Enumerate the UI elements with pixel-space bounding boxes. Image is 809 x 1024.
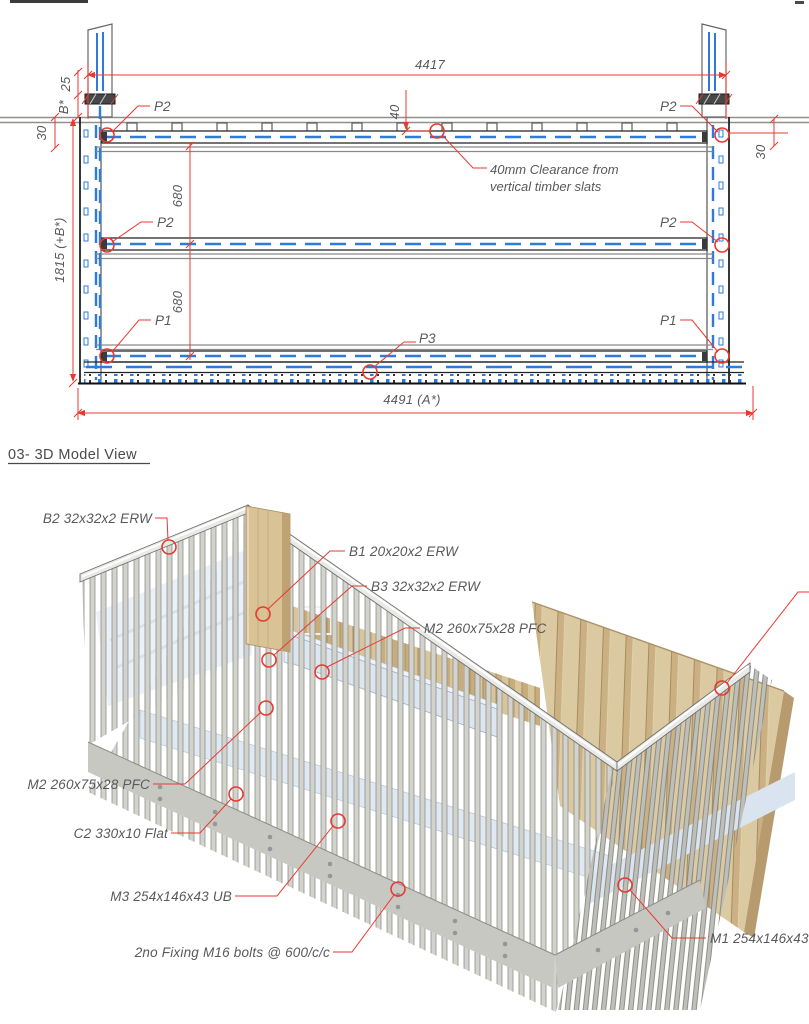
dim-bottom-width: 4491 (A*) xyxy=(383,392,441,407)
cropped-title-underline xyxy=(10,0,88,3)
right-post xyxy=(696,24,732,117)
model-view-title: 03- 3D Model View xyxy=(8,447,137,463)
dimension-bottom-width: 4491 (A*) xyxy=(74,386,757,420)
dimension-30-left: 30 xyxy=(34,113,59,152)
rail-bottom xyxy=(96,345,713,362)
drawing-sheet: 4417 40 40mm Clearance from vertical tim… xyxy=(0,0,809,1024)
label-p2-top-right: P2 xyxy=(660,99,677,114)
dim-rail-gap-lower: 680 xyxy=(170,290,185,313)
clearance-note-line2: vertical timber slats xyxy=(490,179,602,194)
label-p3: P3 xyxy=(419,331,436,346)
timber-post xyxy=(246,506,290,652)
label-m2-left: M2 260x75x28 PFC xyxy=(27,777,150,792)
clearance-note-line1: 40mm Clearance from xyxy=(490,162,619,177)
section-title: 03- 3D Model View xyxy=(8,447,150,464)
floor-channel xyxy=(78,362,746,384)
dimension-25-bstar: 25 B* xyxy=(56,68,82,121)
label-c2: C2 330x10 Flat xyxy=(74,826,169,841)
elevation-drawing: 4417 40 40mm Clearance from vertical tim… xyxy=(0,0,809,446)
label-m2-right: M2 260x75x28 PFC xyxy=(424,621,547,636)
left-wall xyxy=(80,117,101,383)
dim-b-star: B* xyxy=(56,99,71,114)
cropped-leader-right xyxy=(727,592,809,683)
label-p2-mid-right: P2 xyxy=(660,215,677,230)
label-b1: B1 20x20x2 ERW xyxy=(349,544,459,559)
dim-top-offset: 25 xyxy=(58,76,73,93)
dim-left-gap: 30 xyxy=(34,125,49,141)
label-b2: B2 32x32x2 ERW xyxy=(43,511,153,526)
rail-top xyxy=(96,131,713,152)
label-b3: B3 32x32x2 ERW xyxy=(371,579,481,594)
label-m3: M3 254x146x43 UB xyxy=(110,889,232,904)
dimension-680s: 680 680 xyxy=(170,142,194,360)
dimension-30-right: 30 xyxy=(729,115,788,160)
label-p2-top-left: P2 xyxy=(154,99,171,114)
label-m1: M1 254x146x43 UB xyxy=(710,931,809,946)
dim-clearance: 40 xyxy=(387,104,402,120)
model-3d-view: 03- 3D Model View xyxy=(0,446,809,1024)
wall-datum-line xyxy=(0,118,809,123)
dim-height: 1815 (+B*) xyxy=(52,217,67,283)
dim-right-gap: 30 xyxy=(753,144,768,160)
label-fixing-bolts: 2no Fixing M16 bolts @ 600/c/c xyxy=(134,945,330,960)
dim-rail-gap-upper: 680 xyxy=(170,184,185,207)
label-p2-mid-left: P2 xyxy=(157,215,174,230)
dim-top-width: 4417 xyxy=(415,57,446,72)
rail-middle xyxy=(96,238,713,259)
label-p1-left: P1 xyxy=(155,313,172,328)
dimension-top-width: 4417 xyxy=(84,57,730,119)
label-p1-right: P1 xyxy=(660,313,677,328)
dimension-height: 1815 (+B*) xyxy=(52,119,77,387)
cropped-mark-top-right xyxy=(795,1,804,4)
left-post xyxy=(82,24,118,358)
